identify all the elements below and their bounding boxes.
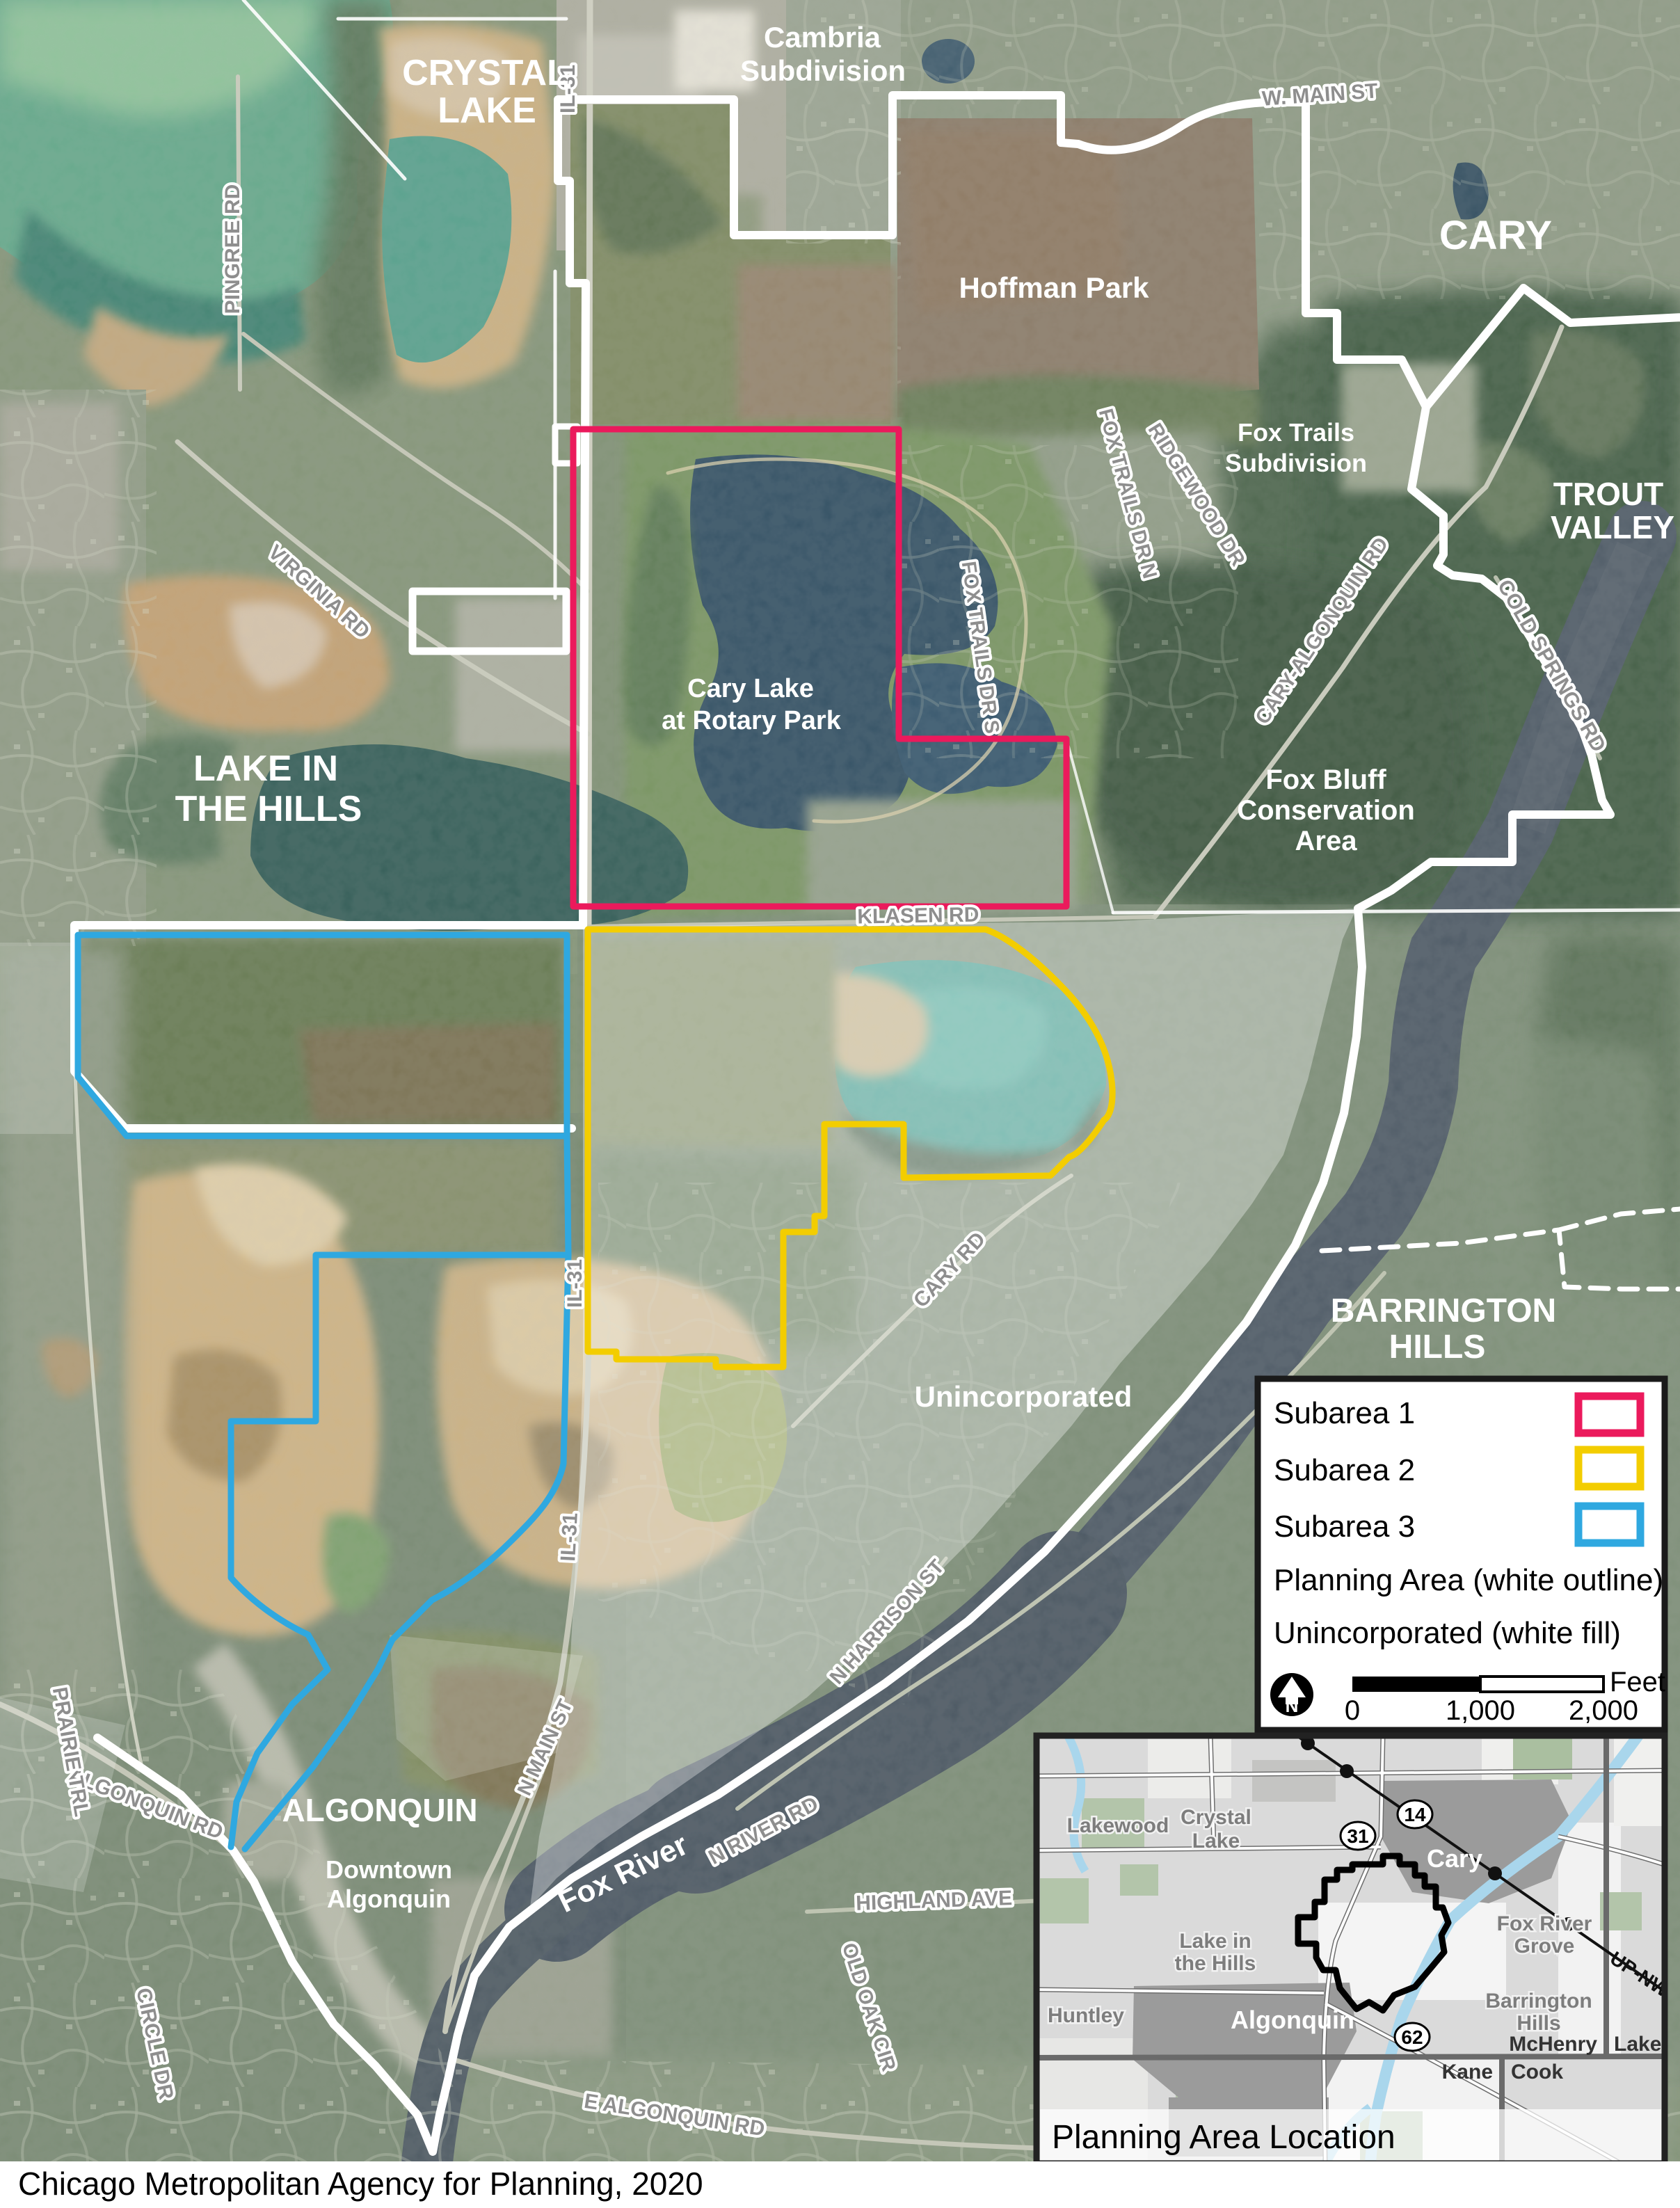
- svg-text:BARRINGTON: BARRINGTON: [1331, 1293, 1556, 1329]
- svg-text:Algonquin: Algonquin: [327, 1885, 451, 1913]
- svg-text:Kane: Kane: [1442, 2061, 1493, 2083]
- svg-text:Unincorporated (white fill): Unincorporated (white fill): [1274, 1616, 1621, 1650]
- svg-text:the Hills: the Hills: [1175, 1952, 1256, 1975]
- svg-text:Subarea 3: Subarea 3: [1274, 1510, 1415, 1544]
- svg-text:Fox River: Fox River: [1497, 1912, 1592, 1935]
- svg-text:ALGONQUIN: ALGONQUIN: [282, 1792, 477, 1828]
- svg-text:Chicago Metropolitan Agency fo: Chicago Metropolitan Agency for Planning…: [18, 2166, 703, 2202]
- svg-text:LAKE IN: LAKE IN: [193, 749, 338, 789]
- svg-text:Feet: Feet: [1610, 1667, 1665, 1697]
- svg-text:IL-31: IL-31: [563, 1259, 586, 1308]
- svg-text:Lake: Lake: [1192, 1830, 1240, 1853]
- svg-text:Subdivision: Subdivision: [740, 54, 906, 87]
- svg-text:Planning Area (white outline): Planning Area (white outline): [1274, 1563, 1663, 1597]
- svg-text:2,000: 2,000: [1569, 1695, 1638, 1726]
- svg-text:CARY: CARY: [1439, 213, 1552, 258]
- svg-text:Fox Bluff: Fox Bluff: [1265, 765, 1386, 795]
- svg-text:Crystal: Crystal: [1181, 1806, 1251, 1829]
- svg-text:Area: Area: [1295, 826, 1358, 856]
- svg-text:Cambria: Cambria: [764, 21, 881, 54]
- svg-text:Conservation: Conservation: [1237, 795, 1415, 826]
- svg-text:TROUT: TROUT: [1553, 476, 1663, 512]
- svg-text:LAKE: LAKE: [438, 90, 536, 131]
- svg-text:0: 0: [1345, 1695, 1360, 1726]
- svg-text:Algonquin: Algonquin: [1231, 2006, 1354, 2034]
- svg-text:Barrington: Barrington: [1485, 1990, 1592, 2013]
- svg-text:Hoffman Park: Hoffman Park: [959, 271, 1149, 304]
- svg-text:VALLEY: VALLEY: [1551, 509, 1674, 545]
- svg-text:Unincorporated: Unincorporated: [915, 1380, 1133, 1413]
- svg-text:1,000: 1,000: [1446, 1695, 1515, 1726]
- svg-text:Huntley: Huntley: [1048, 2004, 1124, 2027]
- svg-text:31: 31: [1347, 1825, 1368, 1847]
- svg-text:Fox Trails: Fox Trails: [1238, 418, 1354, 447]
- svg-text:Cary Lake: Cary Lake: [687, 674, 814, 703]
- svg-text:Subarea 2: Subarea 2: [1274, 1453, 1415, 1487]
- svg-text:at Rotary Park: at Rotary Park: [662, 706, 842, 735]
- svg-text:Downtown: Downtown: [326, 1855, 452, 1884]
- svg-text:Lakewood: Lakewood: [1067, 1814, 1169, 1837]
- svg-text:McHenry: McHenry: [1509, 2033, 1597, 2056]
- svg-text:Cary: Cary: [1427, 1844, 1482, 1873]
- svg-text:CRYSTAL: CRYSTAL: [402, 53, 569, 93]
- svg-text:Subdivision: Subdivision: [1225, 449, 1367, 477]
- svg-text:Hills: Hills: [1517, 2012, 1560, 2035]
- svg-text:Planning Area Location: Planning Area Location: [1052, 2119, 1395, 2156]
- svg-text:PINGREE RD: PINGREE RD: [221, 184, 244, 314]
- svg-text:Subarea 1: Subarea 1: [1274, 1396, 1415, 1430]
- svg-text:HILLS: HILLS: [1389, 1329, 1486, 1366]
- svg-text:IL-31: IL-31: [557, 1512, 582, 1562]
- svg-text:N: N: [1286, 1695, 1299, 1716]
- svg-text:Lake: Lake: [1614, 2033, 1661, 2056]
- svg-text:Grove: Grove: [1514, 1935, 1575, 1958]
- svg-text:THE HILLS: THE HILLS: [175, 789, 362, 829]
- svg-text:62: 62: [1401, 2026, 1423, 2048]
- svg-text:14: 14: [1404, 1804, 1426, 1825]
- svg-text:Lake in: Lake in: [1179, 1930, 1251, 1953]
- svg-text:Cook: Cook: [1511, 2061, 1563, 2083]
- svg-text:KLASEN RD: KLASEN RD: [857, 903, 979, 928]
